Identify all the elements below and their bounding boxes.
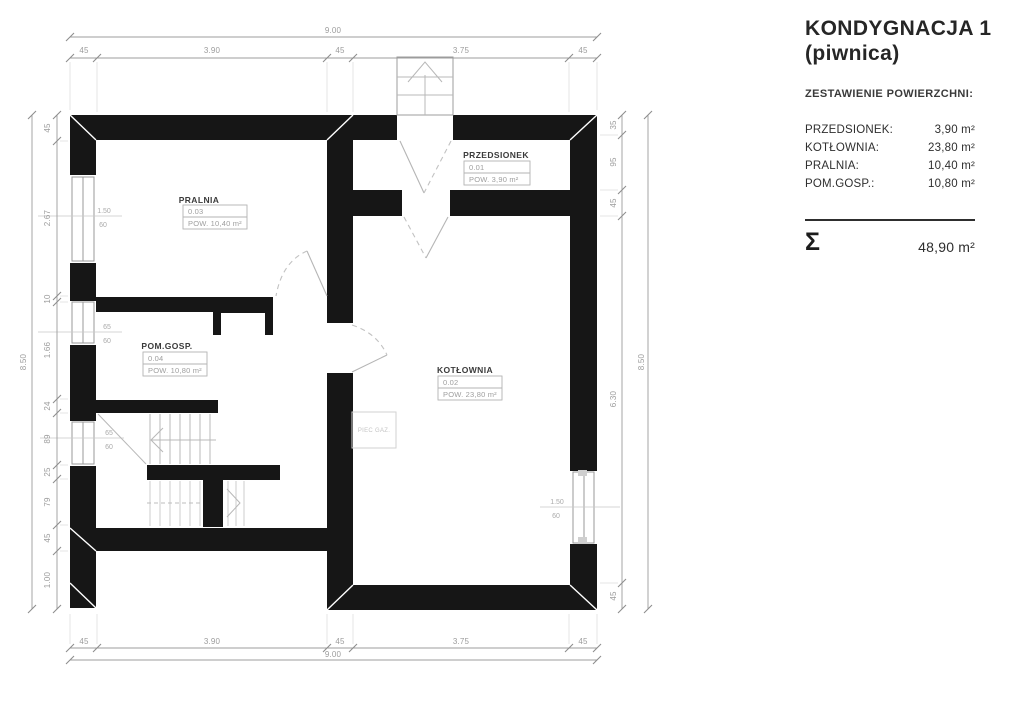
- room-number: 0.02: [443, 378, 458, 387]
- bottom-left-thick-wall: [70, 528, 353, 551]
- kotlownia-bottom-wall: [327, 585, 597, 610]
- left-wall-seg2: [70, 263, 96, 301]
- room-name: PRALNIA: [179, 195, 220, 205]
- central-wall-upper: [327, 140, 353, 323]
- dim-bottom-total: 9.00: [325, 650, 342, 659]
- room-area: POW. 3,90 m²: [469, 175, 519, 184]
- room-name: POM.GOSP.: [141, 341, 192, 351]
- window1-sill: 60: [99, 222, 107, 229]
- dim-right-0: 35: [609, 120, 618, 130]
- dim-left-7: 79: [43, 497, 52, 507]
- area-row-label: POM.GOSP.:: [805, 175, 875, 193]
- dim-bottom-2: 45: [335, 637, 345, 646]
- area-summary-heading: ZESTAWIENIE POWIERZCHNI:: [805, 88, 975, 100]
- total-area-value: 48,90 m²: [918, 239, 975, 255]
- stair-landing-wall: [147, 465, 280, 480]
- divider: [805, 219, 975, 221]
- dim-top-0: 45: [79, 46, 89, 55]
- dim-top-total: 9.00: [325, 26, 342, 35]
- window1-width: 1.50: [97, 208, 111, 215]
- dim-bottom-4: 45: [578, 637, 588, 646]
- area-row-label: PRZEDSIONEK:: [805, 121, 893, 139]
- room-label-pomgosp: POM.GOSP. 0.04 POW. 10,80 m²: [141, 341, 207, 376]
- room-label-kotlownia: KOTŁOWNIA 0.02 POW. 23,80 m²: [437, 365, 502, 400]
- chimney-flue: [221, 313, 265, 335]
- window4-sill: 60: [552, 513, 560, 520]
- room-name: KOTŁOWNIA: [437, 365, 493, 375]
- area-summary-list: PRZEDSIONEK: 3,90 m² KOTŁOWNIA: 23,80 m²…: [805, 121, 975, 193]
- stair-divider-wall: [203, 480, 223, 527]
- dim-bottom-0: 45: [79, 637, 89, 646]
- przedsionek-wall-right: [450, 190, 570, 216]
- dim-top-1: 3.90: [204, 46, 221, 55]
- door-przedsionek-kotlownia: [404, 217, 448, 258]
- room-number: 0.03: [188, 207, 203, 216]
- dim-right-total: 8.50: [637, 353, 646, 370]
- window2-width: 65: [103, 324, 111, 331]
- stair-down-arrow-icon: [227, 489, 240, 517]
- dim-bottom-1: 3.90: [204, 637, 221, 646]
- room-label-pralnia: PRALNIA 0.03 POW. 10,40 m²: [179, 195, 247, 229]
- stair-treads-upper: [150, 414, 210, 464]
- dim-left-2: 10: [43, 294, 52, 304]
- floorplan-page: 1.50 60 65 60 65 60 1.50 60: [0, 0, 1024, 725]
- gas-furnace: PIEC GAZ.: [352, 412, 396, 448]
- central-wall-lower: [327, 373, 353, 585]
- window2-sill: 60: [103, 338, 111, 345]
- area-row-value: 3,90 m²: [935, 121, 975, 139]
- room-area: POW. 10,80 m²: [148, 366, 202, 375]
- przedsionek-wall-left: [327, 190, 402, 216]
- dim-left-total: 8.50: [19, 353, 28, 370]
- dim-left-1: 2.67: [43, 209, 52, 226]
- dim-right-1: 95: [609, 157, 618, 167]
- sum-symbol: Σ: [805, 230, 820, 255]
- legend-panel: KONDYGNACJA 1 (piwnica) ZESTAWIENIE POWI…: [805, 16, 975, 255]
- room-area: POW. 23,80 m²: [443, 390, 497, 399]
- area-row-value: 23,80 m²: [928, 139, 975, 157]
- area-row-przedsionek: PRZEDSIONEK: 3,90 m²: [805, 121, 975, 139]
- window3-width: 65: [105, 430, 113, 437]
- left-wall-seg1: [70, 115, 96, 175]
- dim-left-9: 1.00: [43, 571, 52, 588]
- stair-break-line: [98, 414, 146, 464]
- area-row-label: KOTŁOWNIA:: [805, 139, 879, 157]
- dim-right-3: 6.30: [609, 390, 618, 407]
- total-row: Σ 48,90 m²: [805, 230, 975, 255]
- door-entrance: [400, 141, 451, 193]
- area-row-pomgosp: POM.GOSP.: 10,80 m²: [805, 175, 975, 193]
- room-area: POW. 10,40 m²: [188, 219, 242, 228]
- room-number: 0.04: [148, 354, 163, 363]
- stair-top-wall: [96, 400, 218, 413]
- dim-left-5: 89: [43, 434, 52, 444]
- window4-width: 1.50: [550, 499, 564, 506]
- door-kotlownia: [352, 325, 387, 372]
- dim-right-4: 45: [609, 591, 618, 601]
- dim-top-3: 3.75: [453, 46, 470, 55]
- title-line-1: KONDYGNACJA 1: [805, 16, 975, 41]
- area-row-label: PRALNIA:: [805, 157, 859, 175]
- area-row-value: 10,40 m²: [928, 157, 975, 175]
- area-row-pralnia: PRALNIA: 10,40 m²: [805, 157, 975, 175]
- title-line-2: (piwnica): [805, 41, 975, 66]
- dim-left-3: 1.66: [43, 341, 52, 358]
- room-number: 0.01: [469, 163, 484, 172]
- left-wall-seg3: [70, 345, 96, 421]
- area-row-kotlownia: KOTŁOWNIA: 23,80 m²: [805, 139, 975, 157]
- dim-left-0: 45: [43, 123, 52, 133]
- dim-bottom-3: 3.75: [453, 637, 470, 646]
- dim-top-4: 45: [578, 46, 588, 55]
- right-wall-upper: [570, 115, 597, 471]
- top-wall-left: [70, 115, 397, 140]
- doors: [276, 141, 451, 372]
- dim-left-6: 25: [43, 467, 52, 477]
- gas-furnace-label: PIEC GAZ.: [358, 428, 390, 434]
- dim-left-4: 24: [43, 401, 52, 411]
- dim-left-8: 45: [43, 533, 52, 543]
- area-row-value: 10,80 m²: [928, 175, 975, 193]
- window3-sill: 60: [105, 444, 113, 451]
- dim-top-2: 45: [335, 46, 345, 55]
- page-title: KONDYGNACJA 1 (piwnica): [805, 16, 975, 66]
- dim-right-2: 45: [609, 198, 618, 208]
- room-name: PRZEDSIONEK: [463, 150, 529, 160]
- door-pralnia: [276, 251, 327, 296]
- entrance-stair: [397, 57, 453, 115]
- room-label-przedsionek: PRZEDSIONEK 0.01 POW. 3,90 m²: [463, 150, 530, 185]
